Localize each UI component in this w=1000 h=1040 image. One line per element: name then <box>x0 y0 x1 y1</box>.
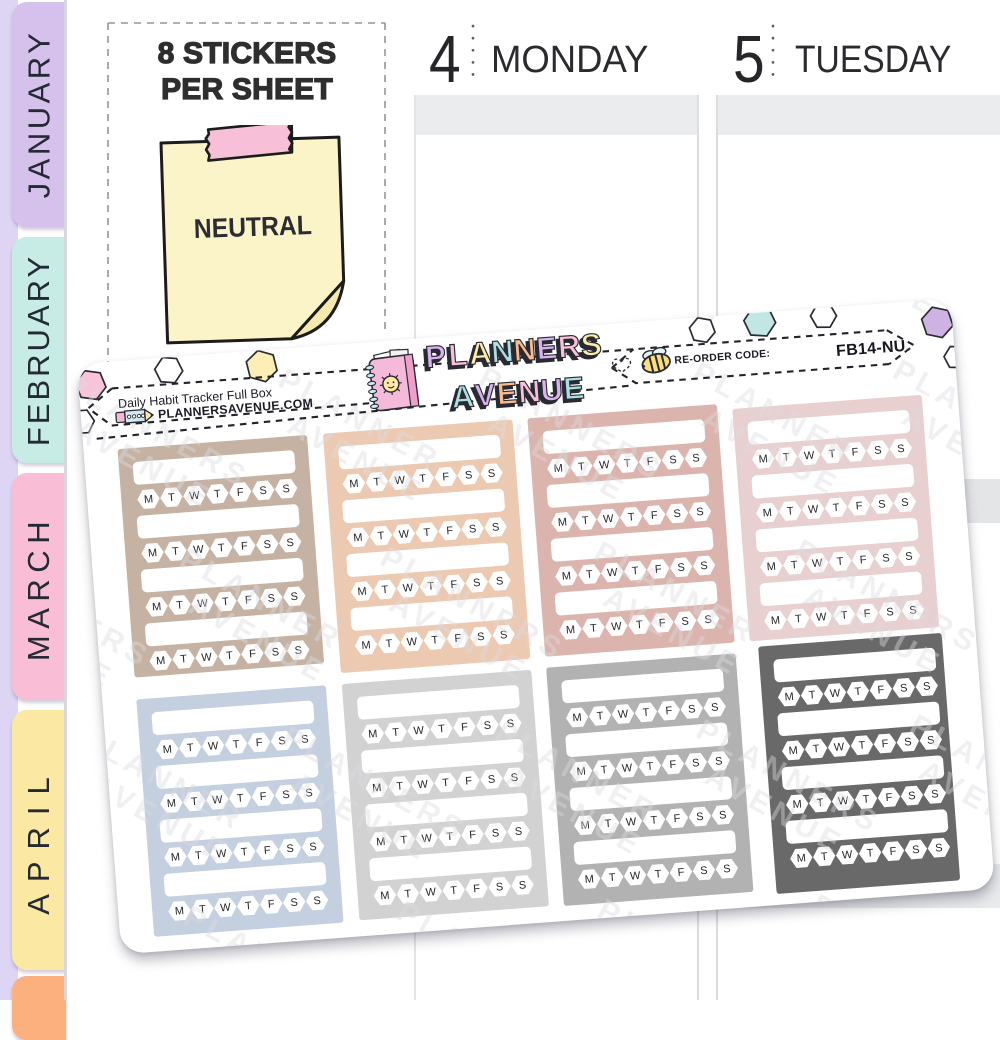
svg-text:NEUTRAL: NEUTRAL <box>193 210 312 244</box>
svg-text:E: E <box>562 370 585 406</box>
svg-text:S: S <box>580 327 603 363</box>
